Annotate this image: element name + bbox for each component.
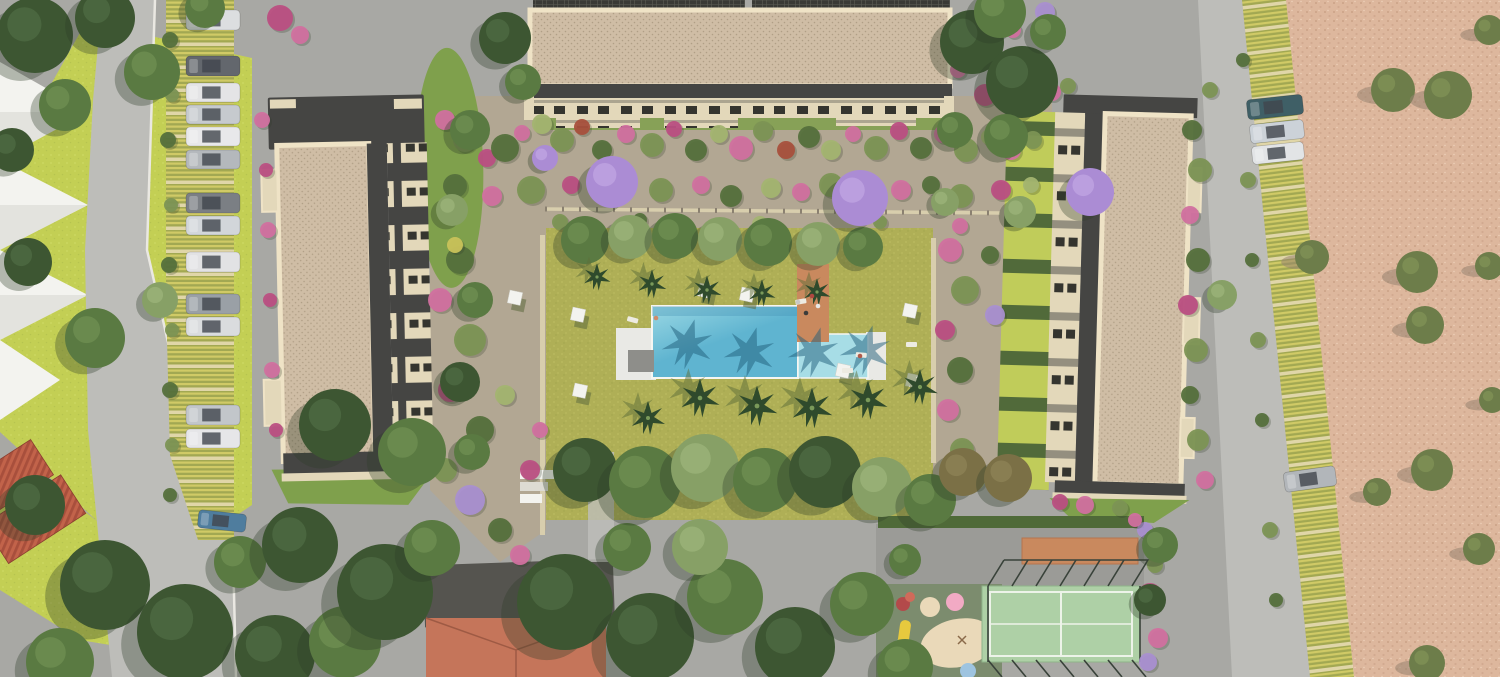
person <box>796 300 801 305</box>
parked-car <box>186 150 240 169</box>
person <box>858 354 863 359</box>
parked-car <box>186 83 240 102</box>
person <box>810 294 815 299</box>
parked-car <box>186 127 240 146</box>
sand-circle <box>920 597 940 617</box>
parked-car <box>186 252 240 272</box>
pool-main <box>652 306 798 378</box>
roof-detail <box>270 99 296 109</box>
sun-lounger <box>842 368 853 373</box>
play-structure <box>905 592 915 602</box>
parked-car <box>186 56 240 76</box>
aerial-render-stage <box>0 0 1500 677</box>
gravel-roof <box>530 10 950 86</box>
roof-dark-band <box>524 84 952 100</box>
pink-circle <box>946 593 964 611</box>
site-plan-svg <box>0 0 1500 677</box>
deck-mat <box>628 350 654 372</box>
parked-car <box>186 317 240 336</box>
person <box>654 316 659 321</box>
person <box>804 311 809 316</box>
east-facade-balconies <box>387 142 434 459</box>
pool-edge-shadow <box>652 306 798 316</box>
roof-notch <box>264 379 283 425</box>
parked-car <box>186 429 240 448</box>
person <box>816 304 821 309</box>
right-apartment-building <box>996 93 1206 524</box>
parked-car <box>186 216 240 235</box>
top-apartment-building <box>524 0 954 130</box>
roof-detail <box>394 98 422 109</box>
lawn-wall-right <box>931 238 936 463</box>
parked-car <box>186 105 240 124</box>
parked-car <box>186 294 240 314</box>
parked-car <box>186 405 240 425</box>
parked-car <box>186 193 240 213</box>
sun-lounger <box>906 342 917 347</box>
gravel-roof <box>1095 114 1191 486</box>
